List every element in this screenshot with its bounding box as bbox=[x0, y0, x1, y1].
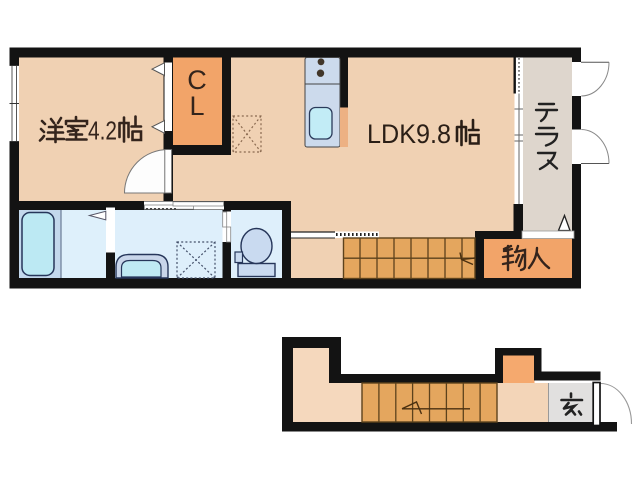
svg-text:L: L bbox=[189, 91, 204, 121]
svg-text:LDK9.8: LDK9.8 bbox=[367, 119, 451, 149]
svg-text:4.2: 4.2 bbox=[88, 116, 117, 146]
